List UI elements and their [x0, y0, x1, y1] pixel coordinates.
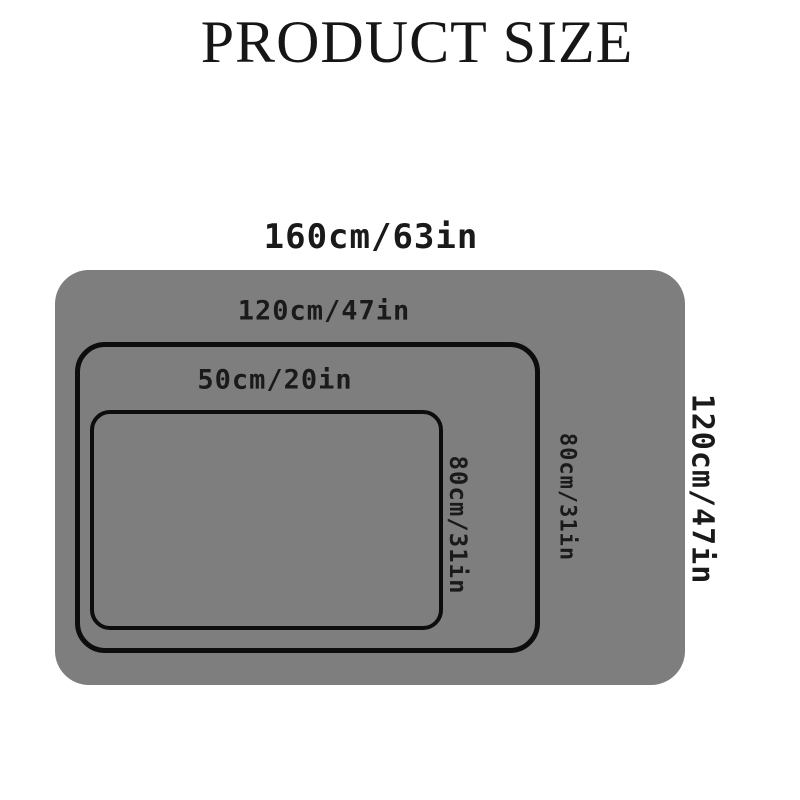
outer-height-label: 120cm/47in: [685, 394, 720, 585]
product-size-diagram: PRODUCT SIZE 160cm/63in 120cm/47in 50cm/…: [0, 0, 800, 800]
middle-height-label: 80cm/31in: [555, 433, 580, 561]
inner-height-label: 80cm/31in: [444, 455, 472, 594]
outer-width-label: 160cm/63in: [264, 217, 479, 257]
middle-width-label: 120cm/47in: [238, 296, 411, 327]
page-title: PRODUCT SIZE: [201, 8, 634, 77]
inner-size-rectangle: [90, 410, 443, 630]
inner-width-label: 50cm/20in: [197, 365, 352, 396]
